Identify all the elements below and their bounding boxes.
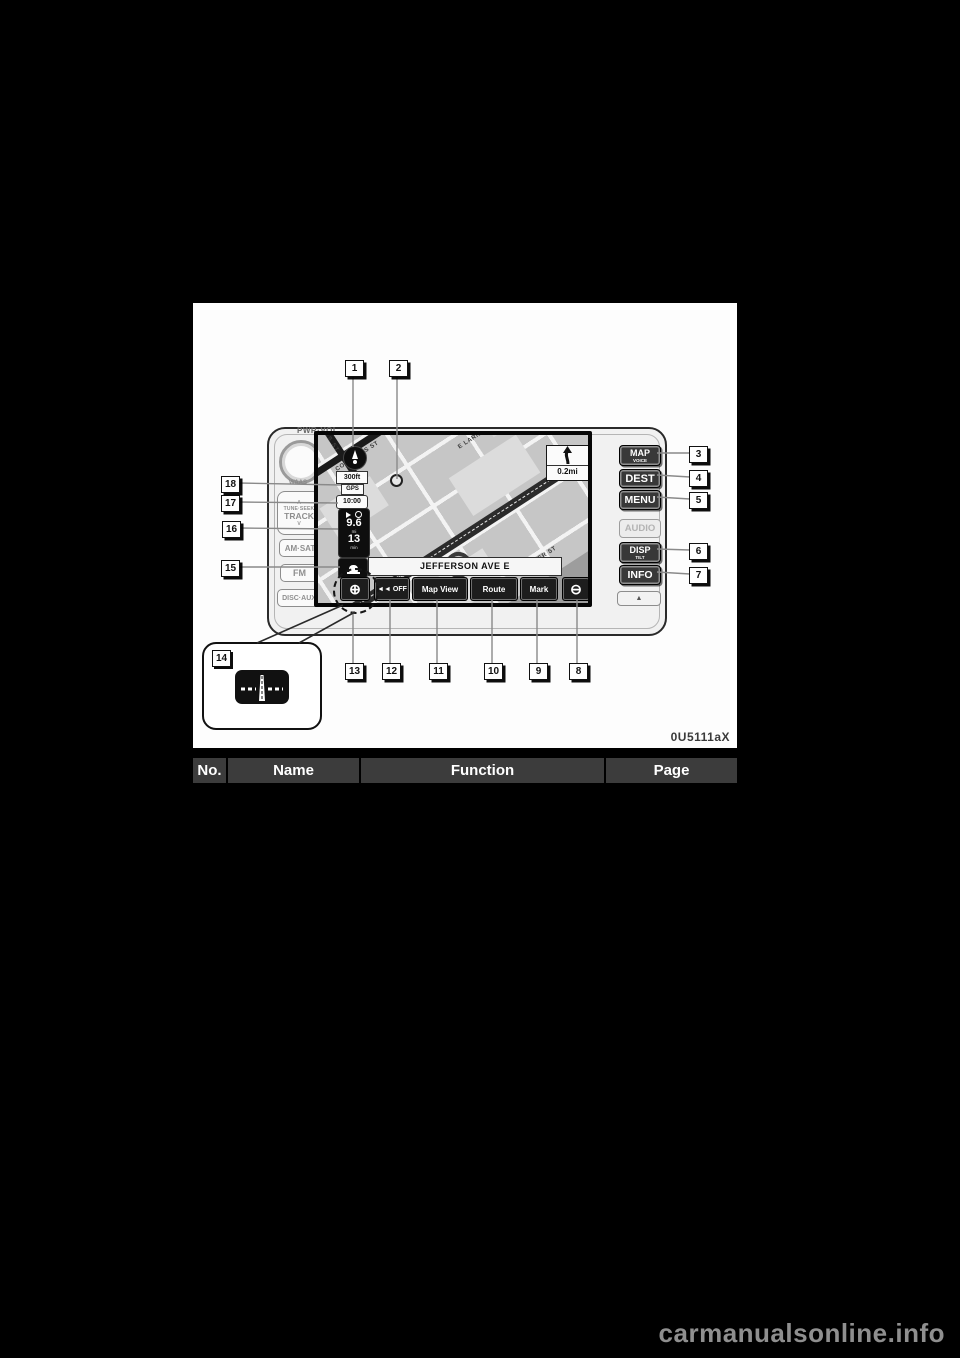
callout-16: 16 (222, 521, 241, 538)
callout-3: 3 (689, 446, 708, 463)
callout-12: 12 (382, 663, 401, 680)
site-watermark: carmanualsonline.info (659, 1318, 945, 1349)
dest-button[interactable]: DEST (619, 469, 661, 488)
freeway-mode-icon (235, 670, 289, 704)
info-label: INFO (627, 569, 652, 581)
time-value: 13 (339, 534, 369, 545)
clock-display: 10:00 (336, 495, 368, 509)
callout-18: 18 (221, 476, 240, 493)
column-header-name: Name (228, 758, 359, 783)
street-label: BATES ST (318, 435, 340, 454)
disp-label: DISP (629, 546, 650, 555)
callout-1: 1 (345, 360, 364, 377)
compass-needle-icon (352, 450, 358, 459)
menu-label: MENU (625, 494, 656, 506)
callout-5: 5 (689, 492, 708, 509)
callout-17: 17 (221, 495, 240, 512)
callout-10: 10 (484, 663, 503, 680)
tilt-label: TILT (635, 555, 644, 560)
current-street-banner: JEFFERSON AVE E (368, 557, 562, 576)
column-header-page: Page (606, 758, 737, 783)
audio-button[interactable]: AUDIO (619, 519, 661, 538)
waas-label: WAAS (281, 480, 315, 486)
info-button[interactable]: INFO (619, 565, 661, 585)
current-position-mark (390, 474, 403, 487)
voice-label: VOICE (633, 458, 647, 463)
disp-tilt-button[interactable]: DISP TILT (619, 542, 661, 563)
turn-guidance-box: 0.2mi (546, 445, 588, 481)
off-button[interactable]: ◄◄ OFF (374, 577, 410, 601)
column-header-function: Function (361, 758, 604, 783)
callout-6: 6 (689, 543, 708, 560)
zoom-out-button[interactable]: ⊖ (562, 577, 588, 601)
callout-8: 8 (569, 663, 588, 680)
zoom-out-icon: ⊖ (570, 582, 582, 596)
figure-code: 0U5111aX (671, 730, 730, 744)
dest-label: DEST (625, 473, 654, 485)
map-view-button[interactable]: Map View (412, 577, 468, 601)
callout-7: 7 (689, 567, 708, 584)
map-scale-indicator[interactable]: 300ft (336, 471, 368, 484)
reference-table-header: No. Name Function Page (193, 758, 737, 783)
menu-button[interactable]: MENU (619, 490, 661, 510)
route-button[interactable]: Route (470, 577, 518, 601)
map-voice-button[interactable]: MAP VOICE (619, 445, 661, 466)
distance-time-to-destination: 9.6 mi 13 min (338, 508, 370, 558)
diagram-panel: PWR·VOL WAAS ∧ TUNE·SEEK TRACK ∨ AM·SAT … (193, 303, 737, 748)
column-header-no: No. (193, 758, 226, 783)
rocker-down-icon: ∨ (296, 521, 301, 527)
gps-mark: GPS (341, 484, 364, 495)
zoom-in-highlight-ring (333, 568, 379, 614)
callout-4: 4 (689, 470, 708, 487)
turn-distance: 0.2mi (547, 465, 588, 477)
time-unit: min (339, 545, 369, 550)
street-label: E LARNED (457, 435, 490, 450)
callout-15: 15 (221, 560, 240, 577)
eject-icon: ▲ (636, 595, 643, 602)
map-label: MAP (630, 449, 650, 458)
callout-13: 13 (345, 663, 364, 680)
distance-value: 9.6 (339, 518, 369, 529)
callout-9: 9 (529, 663, 548, 680)
callout-14: 14 (212, 650, 231, 667)
compass-dot-icon (353, 460, 357, 464)
turn-arrow-icon (558, 446, 578, 465)
freeway-callout-box: 14 (202, 642, 322, 730)
audio-label: AUDIO (625, 523, 656, 534)
callout-11: 11 (429, 663, 448, 680)
north-up-symbol[interactable] (343, 446, 367, 470)
manual-page: PWR·VOL WAAS ∧ TUNE·SEEK TRACK ∨ AM·SAT … (0, 0, 960, 1358)
mark-button[interactable]: Mark (520, 577, 558, 601)
eject-button[interactable]: ▲ (617, 591, 661, 606)
callout-2: 2 (389, 360, 408, 377)
